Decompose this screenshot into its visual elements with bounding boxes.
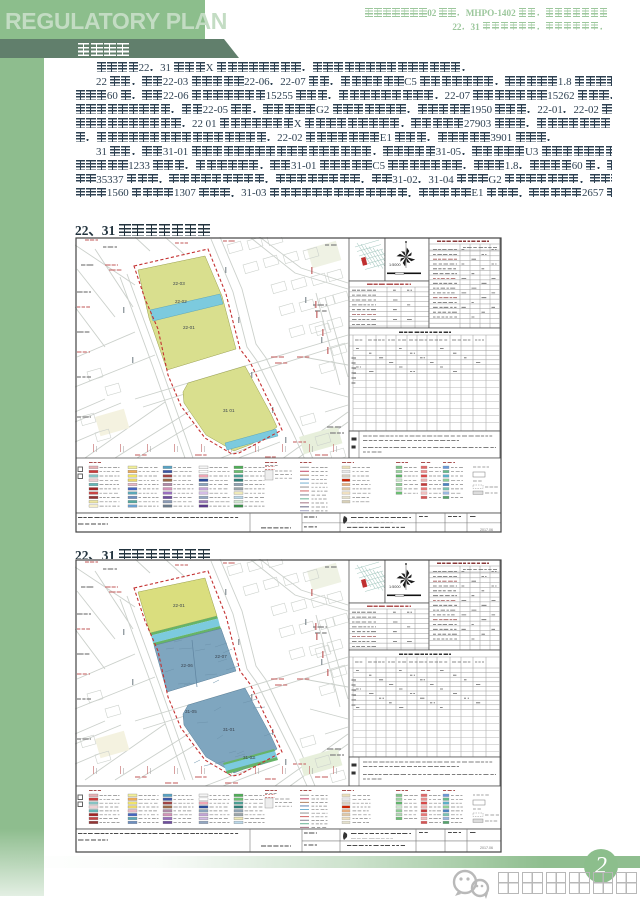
svg-text:31-05: 31-05 — [185, 709, 197, 714]
svg-text:2017.06: 2017.06 — [480, 528, 493, 532]
svg-text:22-03: 22-03 — [173, 281, 185, 286]
svg-text:22-01: 22-01 — [173, 603, 185, 608]
svg-text:1:5000: 1:5000 — [389, 585, 401, 589]
svg-text:22-07: 22-07 — [215, 654, 227, 659]
svg-text:2017.06: 2017.06 — [480, 846, 493, 850]
svg-text:22-01: 22-01 — [183, 325, 195, 330]
svg-text:31-03: 31-03 — [243, 755, 255, 760]
svg-text:22-06: 22-06 — [181, 663, 193, 668]
svg-text:22-02: 22-02 — [175, 299, 187, 304]
svg-text:31 01: 31 01 — [223, 408, 235, 413]
svg-text:1:5000: 1:5000 — [389, 263, 401, 267]
svg-text:31-01: 31-01 — [223, 727, 235, 732]
